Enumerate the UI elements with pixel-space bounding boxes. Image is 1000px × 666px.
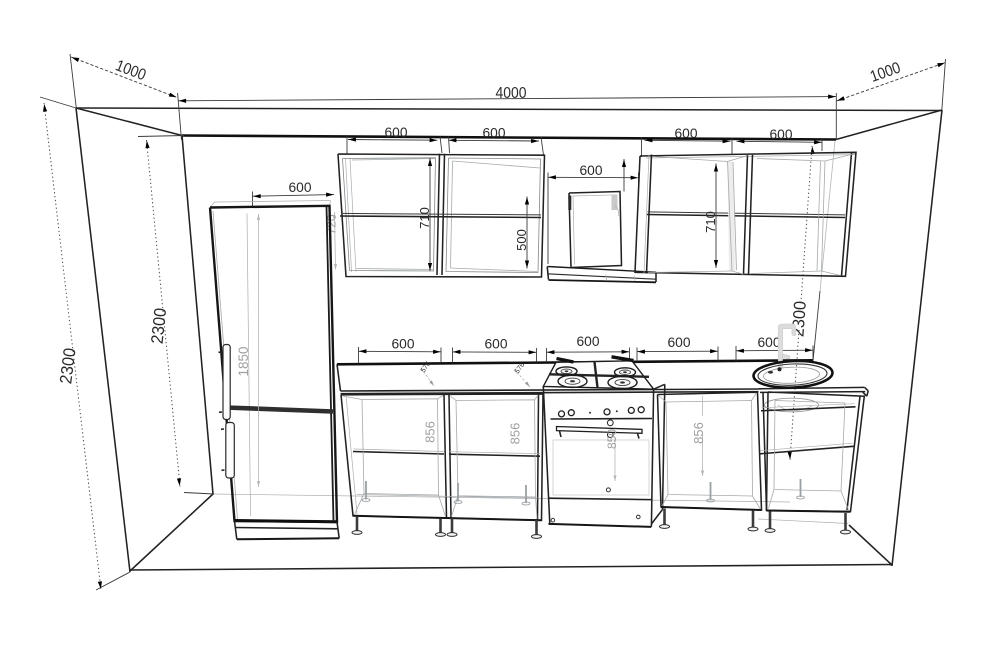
svg-text:856: 856 [423,421,438,443]
svg-text:600: 600 [770,126,793,142]
svg-text:600: 600 [385,124,408,140]
svg-text:856: 856 [508,423,523,445]
svg-text:600: 600 [668,334,691,350]
svg-text:600: 600 [758,334,781,350]
svg-text:600: 600 [577,333,600,349]
svg-text:600: 600 [483,125,506,141]
svg-text:710: 710 [417,207,432,229]
svg-text:4000: 4000 [496,85,527,102]
svg-text:600: 600 [580,162,603,178]
svg-text:1850: 1850 [236,346,251,376]
svg-text:2300: 2300 [148,307,171,345]
svg-text:600: 600 [485,336,508,352]
svg-text:856: 856 [691,422,706,444]
svg-text:600: 600 [392,336,415,352]
svg-text:710: 710 [703,211,718,233]
svg-text:850: 850 [605,429,619,449]
svg-text:600: 600 [675,125,698,141]
svg-text:600: 600 [289,179,312,195]
svg-text:2300: 2300 [788,300,809,337]
svg-text:500: 500 [514,229,529,251]
